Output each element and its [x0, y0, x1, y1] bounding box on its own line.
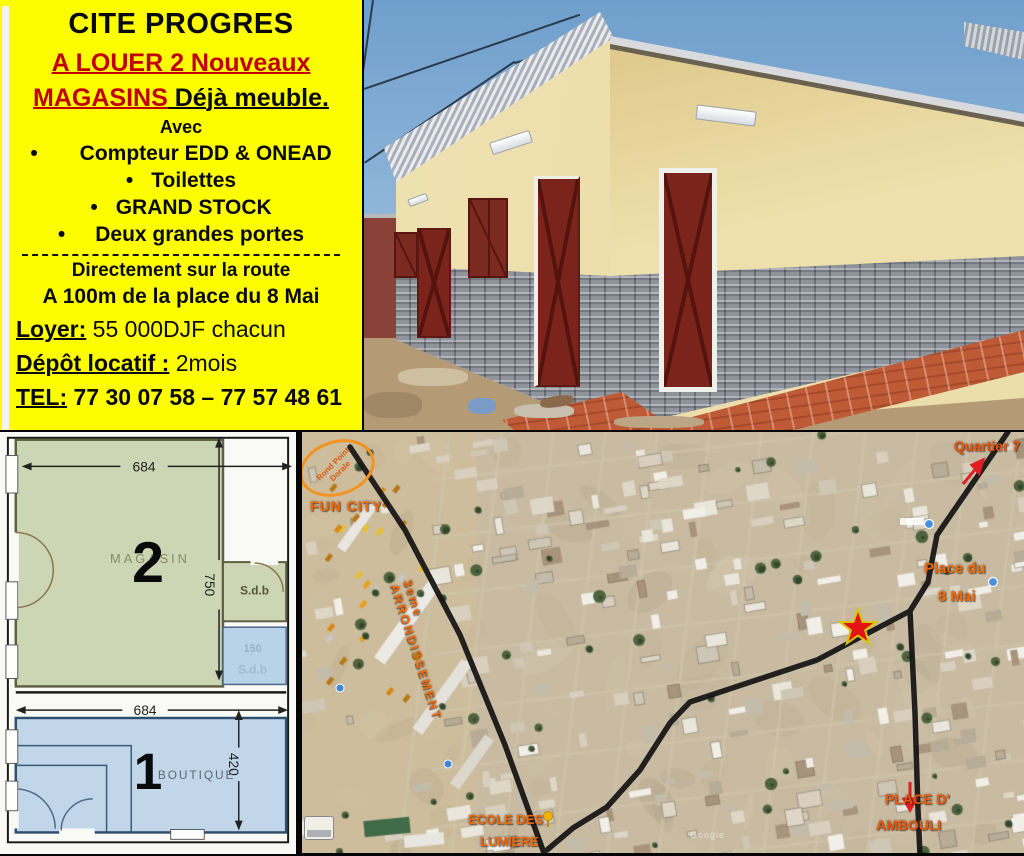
- room2-depth-label: 750: [202, 573, 218, 596]
- feature-label: Deux grandes portes: [95, 221, 304, 248]
- road-line: [547, 611, 910, 850]
- label-quartier-7: Quartier 7: [954, 438, 1020, 454]
- flyer-slide: CITE PROGRES A LOUER 2 Nouveaux MAGASINS…: [0, 0, 1024, 856]
- ad-subtitle-2-red: MAGASINS: [33, 84, 168, 112]
- google-watermark: Google: [690, 830, 725, 840]
- map-thumbnail: [304, 816, 334, 840]
- debris: [468, 398, 496, 414]
- feature-label: GRAND STOCK: [116, 194, 272, 221]
- bath-blue-label: S.d.b: [238, 663, 267, 677]
- window-shutter: [468, 198, 508, 278]
- ad-title: CITE PROGRES: [0, 8, 362, 41]
- road-line: [910, 432, 1008, 853]
- bullet-icon: •: [58, 221, 65, 248]
- phone-line: TEL: 77 30 07 58 – 77 57 48 61: [0, 384, 362, 411]
- feature-label: Toilettes: [151, 167, 236, 194]
- property-photo: [364, 0, 1024, 430]
- label-ecole-2: LUMIERE: [480, 834, 539, 849]
- satellite-map: Rond Point Dorale FUN CITY 3eme ARRONDIS…: [302, 432, 1024, 853]
- location-line-2: A 100m de la place du 8 Mai: [0, 285, 362, 309]
- bullet-icon: •: [126, 167, 133, 194]
- rent-value: 55 000DJF chacun: [86, 316, 285, 342]
- debris: [614, 416, 704, 428]
- phone-label: TEL:: [16, 384, 67, 410]
- poi-icon: [336, 684, 344, 692]
- school-pin-icon: [544, 812, 553, 821]
- label-ambouli-2: AMBOULI: [876, 817, 941, 833]
- ad-subtitle-2-black: Déjà meuble.: [168, 84, 329, 112]
- label-place-8mai-2: 8 Mai: [938, 588, 976, 605]
- debris: [364, 392, 422, 418]
- debris: [398, 368, 468, 386]
- bath-width-label: 150: [244, 643, 262, 655]
- features-list: •Compteur EDD & ONEAD •Toilettes •GRAND …: [0, 140, 362, 248]
- deposit-line: Dépôt locatif : 2mois: [0, 350, 362, 377]
- label-place-8mai-1: Place du: [924, 560, 986, 577]
- floor-plan-drawing: 150 S.d.b: [0, 432, 296, 854]
- ad-panel: CITE PROGRES A LOUER 2 Nouveaux MAGASINS…: [0, 0, 362, 430]
- power-line: [364, 0, 374, 212]
- phone-numbers: 77 30 07 58 – 77 57 48 61: [67, 384, 342, 410]
- poi-icon: [444, 760, 452, 768]
- location-line-1: Directement sur la route: [0, 260, 362, 282]
- ad-subtitle-1: A LOUER 2 Nouveaux: [52, 49, 311, 77]
- room1-name: BOUTIQUE: [158, 768, 236, 782]
- floor-plan: 150 S.d.b: [0, 432, 296, 854]
- shop-door: [417, 228, 451, 338]
- ad-subtitle-2: MAGASINS Déjà meuble.: [0, 84, 362, 113]
- rent-label: Loyer:: [16, 316, 86, 342]
- room1-width-label: 684: [134, 702, 157, 718]
- rent-line: Loyer: 55 000DJF chacun: [0, 316, 362, 343]
- shop-door: [659, 168, 717, 392]
- room2-width-label: 684: [133, 458, 156, 474]
- room1-number: 1: [134, 743, 163, 800]
- poi-icon: [925, 520, 934, 529]
- label-ecole-1: ECOLE DES: [468, 812, 543, 827]
- door-gap: [59, 828, 95, 835]
- label-ambouli-1: PLACE D': [885, 791, 950, 807]
- window-shutter: [394, 232, 418, 278]
- deposit-value: 2mois: [169, 350, 237, 376]
- feature-item: •Deux grandes portes: [0, 221, 362, 248]
- ad-avec: Avec: [0, 117, 362, 138]
- shop-door: [534, 176, 580, 387]
- bullet-icon: •: [30, 140, 37, 167]
- room2-number: 2: [132, 531, 164, 595]
- dashed-divider: [22, 254, 341, 256]
- panel-left-edge: [2, 6, 9, 430]
- label-fun-city: FUN CITY: [310, 498, 383, 514]
- feature-item: •Toilettes: [0, 167, 362, 194]
- feature-item: •Compteur EDD & ONEAD: [0, 140, 362, 167]
- poi-icon: [989, 578, 998, 587]
- deposit-label: Dépôt locatif :: [16, 350, 169, 376]
- feature-label: Compteur EDD & ONEAD: [80, 140, 332, 167]
- bullet-icon: •: [90, 194, 97, 221]
- feature-item: •GRAND STOCK: [0, 194, 362, 221]
- shutter-split: [488, 200, 490, 276]
- bath-green-label: S.d.b: [240, 584, 269, 598]
